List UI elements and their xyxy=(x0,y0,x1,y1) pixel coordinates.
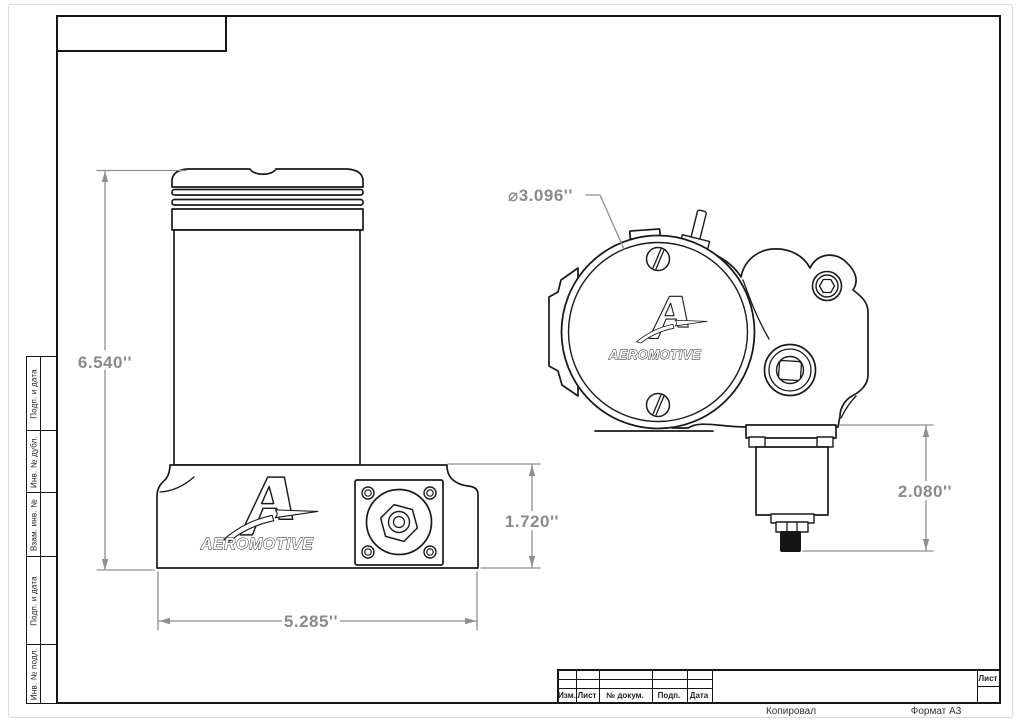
regulator xyxy=(746,425,836,552)
pump-cap-rib xyxy=(172,190,363,196)
dim-outlet-height-text: 1.720'' xyxy=(505,512,559,531)
side-port xyxy=(765,345,816,396)
aeromotive-wordmark: AEROMOTIVE xyxy=(200,536,314,553)
drawing-sheet: Подп. и дата Инв. № дубл. Взам. инв. № П… xyxy=(0,0,1024,724)
drawing-svg: AEROMOTIVE 6.540'' 5.285'' xyxy=(0,0,1024,724)
dim-front-width-text: 5.285'' xyxy=(284,612,338,631)
side-view: AEROMOTIVE ⌀3.096'' 2.080'' xyxy=(508,186,955,552)
dim-diameter-text: ⌀3.096'' xyxy=(508,186,573,205)
face-screw-top xyxy=(647,248,670,271)
threaded-stud xyxy=(780,531,801,552)
dim-regulator-height-text: 2.080'' xyxy=(898,482,952,501)
dim-front-height-text: 6.540'' xyxy=(78,353,132,372)
pump-body xyxy=(174,230,360,465)
aeromotive-wordmark: AEROMOTIVE xyxy=(608,347,701,362)
pump-cap-dome xyxy=(172,169,363,187)
pump-cap-rib xyxy=(172,200,363,206)
dim-diameter: ⌀3.096'' xyxy=(508,186,624,249)
face-screw-bottom xyxy=(647,394,670,417)
pump-cap-skirt xyxy=(172,209,363,230)
front-view: AEROMOTIVE 6.540'' 5.285'' xyxy=(76,169,560,631)
dim-front-width: 5.285'' xyxy=(158,572,477,631)
hex-bolt xyxy=(813,272,842,301)
outlet-fitting xyxy=(367,490,432,555)
